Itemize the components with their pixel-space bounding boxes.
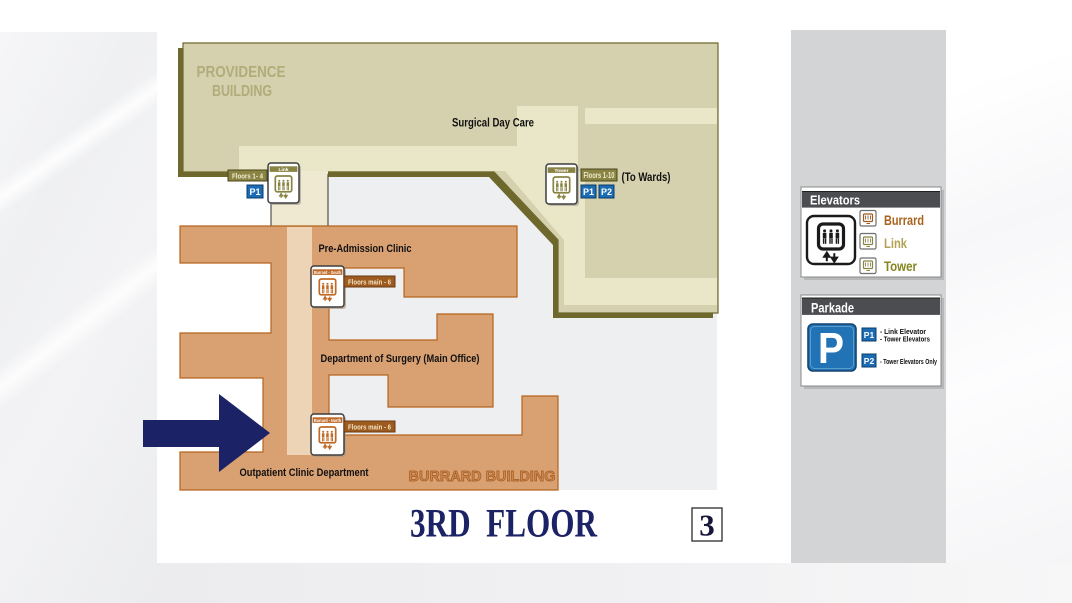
- svg-text:BUILDING: BUILDING: [212, 83, 272, 100]
- svg-text:- Tower Elevators Only: - Tower Elevators Only: [880, 359, 937, 366]
- svg-text:Surgical Day Care: Surgical Day Care: [452, 116, 534, 130]
- svg-text:3: 3: [699, 508, 715, 543]
- svg-text:PROVIDENCE: PROVIDENCE: [197, 64, 286, 81]
- svg-text:Parkade: Parkade: [811, 299, 854, 315]
- svg-text:Floors 1- 4: Floors 1- 4: [232, 172, 264, 181]
- svg-text:Pre-Admission Clinic: Pre-Admission Clinic: [319, 243, 412, 255]
- svg-text:Tower: Tower: [884, 258, 917, 274]
- svg-text:Tower: Tower: [554, 168, 568, 174]
- svg-text:Burrard - North: Burrard - North: [314, 418, 341, 424]
- svg-text:3RD FLOOR: 3RD FLOOR: [410, 501, 598, 546]
- svg-text:Burrard: Burrard: [884, 212, 924, 228]
- svg-text:Link: Link: [278, 167, 288, 173]
- svg-text:P1: P1: [583, 187, 594, 197]
- svg-text:BURRARD BUILDING: BURRARD BUILDING: [409, 468, 556, 485]
- svg-text:P1: P1: [864, 330, 875, 340]
- svg-text:Floors 1-10: Floors 1-10: [584, 171, 615, 180]
- svg-text:Elevators: Elevators: [810, 193, 860, 208]
- svg-text:Burrard - South: Burrard - South: [314, 270, 341, 276]
- svg-text:- Link Elevator: - Link Elevator: [880, 329, 926, 336]
- svg-text:Floors main - 6: Floors main - 6: [348, 423, 391, 432]
- svg-text:P2: P2: [601, 187, 612, 197]
- svg-text:Outpatient Clinic Department: Outpatient Clinic Department: [240, 467, 369, 479]
- svg-text:Department of Surgery (Main Of: Department of Surgery (Main Office): [321, 353, 480, 365]
- svg-text:Floors main - 6: Floors main - 6: [348, 278, 391, 287]
- svg-text:P2: P2: [864, 356, 875, 366]
- svg-text:Link: Link: [884, 235, 907, 251]
- svg-text:P: P: [818, 324, 844, 373]
- svg-text:P1: P1: [249, 187, 260, 197]
- svg-text:(To Wards): (To Wards): [622, 170, 671, 184]
- svg-text:- Tower Elevators: - Tower Elevators: [880, 337, 930, 344]
